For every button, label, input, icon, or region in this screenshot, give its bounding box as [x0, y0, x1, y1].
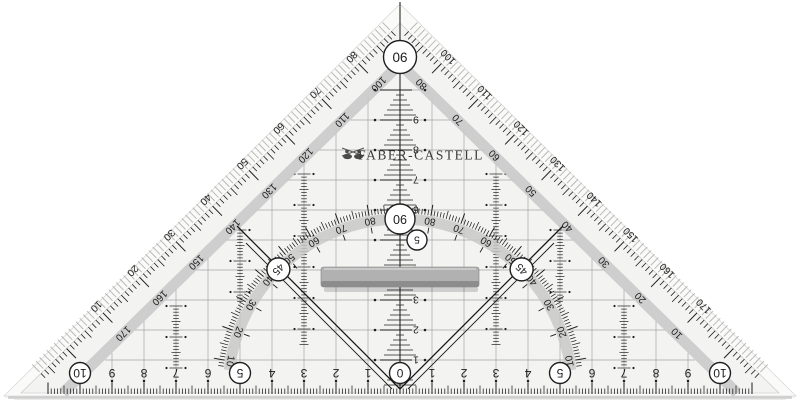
bottom-cm-number: 4	[268, 366, 275, 380]
bottom-cm-number: 6	[204, 366, 211, 380]
bottom-cm-number: 8	[652, 366, 659, 380]
bottom-cm-number: 7	[172, 366, 179, 380]
set-square: 8010010080701101107060120120605013013050…	[0, 0, 800, 400]
vertical-cm-number: 3	[413, 293, 419, 305]
bottom-cm-number: 8	[140, 366, 147, 380]
bottom-cm-number: 6	[588, 366, 595, 380]
bottom-cm-number: 2	[460, 366, 467, 380]
bottom-cm-number: 9	[108, 366, 115, 380]
bottom-cm-number: 3	[492, 366, 499, 380]
bottom-cm-number: 1	[428, 366, 435, 380]
bottom-cm-number: 3	[300, 366, 307, 380]
geodreieck-product-photo: 8010010080701101107060120120605013013050…	[0, 0, 800, 400]
brand-name: FABER-CASTELL	[358, 148, 484, 163]
bottom-cm-number: 1	[364, 366, 371, 380]
apex-angle-badge-value: 90	[392, 49, 407, 64]
vertical-cm-number: 9	[413, 113, 419, 125]
arc-90-badge-value: 90	[393, 212, 407, 226]
bottom-cm-number: 4	[524, 366, 531, 380]
vertical-cm-number: 1	[413, 353, 419, 365]
bottom-cm-number: 2	[332, 366, 339, 380]
bottom-cm-badge-value: 10	[73, 366, 87, 380]
grip-bar	[321, 267, 479, 292]
brand-logo: FABER-CASTELL	[342, 148, 484, 163]
bottom-cm-badge-value: 5	[236, 366, 243, 380]
bottom-cm-badge-0-value: 0	[396, 366, 403, 380]
bottom-cm-badge-value: 5	[556, 366, 563, 380]
vertical-cm-number: 2	[413, 323, 419, 335]
bottom-cm-number: 9	[684, 366, 691, 380]
vertical-cm-badge-value: 5	[414, 233, 420, 245]
bottom-cm-number: 7	[620, 366, 627, 380]
bottom-cm-badge-value: 10	[713, 366, 727, 380]
vertical-cm-number: 7	[413, 173, 419, 185]
